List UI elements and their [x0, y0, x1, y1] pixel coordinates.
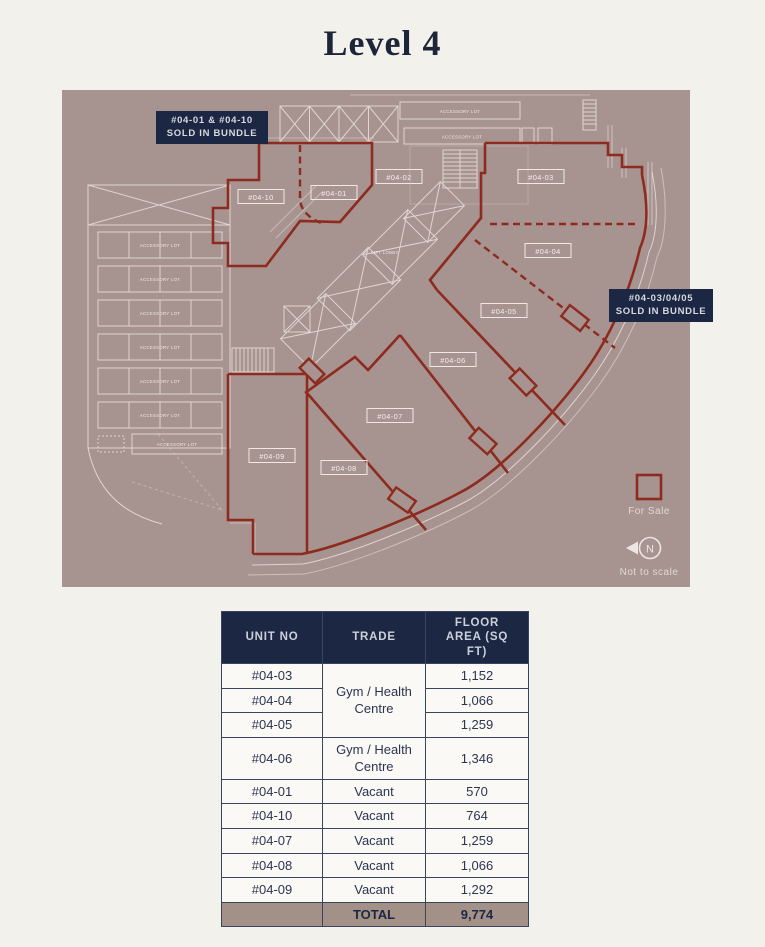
- cell-trade: Vacant: [323, 853, 426, 878]
- svg-text:#04-07: #04-07: [377, 412, 402, 421]
- not-to-scale-label: Not to scale: [620, 567, 679, 578]
- svg-text:LIFT LOBBY: LIFT LOBBY: [371, 250, 398, 255]
- unit-table-wrap: UNIT NO TRADE FLOOR AREA (SQ FT) #04-03 …: [221, 611, 528, 927]
- floor-plan-drawing: ACCESSORY LOT ACCESSORY LOT ACCESSORY LO…: [62, 90, 690, 587]
- table-total-row: TOTAL 9,774: [222, 902, 529, 927]
- cell-unit: #04-09: [222, 878, 323, 903]
- table-row: #04-09 Vacant 1,292: [222, 878, 529, 903]
- svg-text:ACCESSORY LOT: ACCESSORY LOT: [140, 345, 180, 350]
- table-row: #04-08 Vacant 1,066: [222, 853, 529, 878]
- cell-area: 570: [426, 779, 529, 804]
- cell-area: 1,152: [426, 664, 529, 689]
- header-floor-area: FLOOR AREA (SQ FT): [426, 612, 529, 664]
- callout-bundle-01-10: #04-01 & #04-10 SOLD IN BUNDLE: [156, 111, 268, 144]
- svg-text:ACCESSORY LOT: ACCESSORY LOT: [140, 379, 180, 384]
- svg-text:ACCESSORY LOT: ACCESSORY LOT: [140, 311, 180, 316]
- cell-unit: #04-08: [222, 853, 323, 878]
- cell-area: 1,066: [426, 853, 529, 878]
- svg-text:#04-04: #04-04: [535, 247, 560, 256]
- table-header-row: UNIT NO TRADE FLOOR AREA (SQ FT): [222, 612, 529, 664]
- cell-total-label: TOTAL: [323, 902, 426, 927]
- for-sale-label: For Sale: [628, 506, 670, 517]
- svg-text:#04-10: #04-10: [248, 193, 273, 202]
- callout-line: SOLD IN BUNDLE: [611, 305, 711, 318]
- cell-area: 1,259: [426, 828, 529, 853]
- callout-bundle-03-04-05: #04-03/04/05 SOLD IN BUNDLE: [609, 289, 713, 322]
- cell-area: 1,292: [426, 878, 529, 903]
- plan-background: [62, 90, 690, 587]
- table-row: #04-10 Vacant 764: [222, 804, 529, 829]
- cell-area: 1,066: [426, 688, 529, 713]
- svg-text:#04-03: #04-03: [528, 173, 553, 182]
- svg-text:#04-01: #04-01: [321, 189, 346, 198]
- cell-empty: [222, 902, 323, 927]
- svg-text:#04-02: #04-02: [386, 173, 411, 182]
- cell-area: 1,346: [426, 737, 529, 779]
- header-trade: TRADE: [323, 612, 426, 664]
- cell-unit: #04-03: [222, 664, 323, 689]
- svg-text:#04-08: #04-08: [331, 464, 356, 473]
- cell-area: 764: [426, 804, 529, 829]
- cell-trade: Vacant: [323, 779, 426, 804]
- cell-unit: #04-10: [222, 804, 323, 829]
- cell-trade: Vacant: [323, 828, 426, 853]
- cell-unit: #04-06: [222, 737, 323, 779]
- svg-text:ACCESSORY LOT: ACCESSORY LOT: [140, 277, 180, 282]
- cell-unit: #04-01: [222, 779, 323, 804]
- cell-unit: #04-04: [222, 688, 323, 713]
- cell-trade: Vacant: [323, 804, 426, 829]
- cell-area: 1,259: [426, 713, 529, 738]
- cell-unit: #04-07: [222, 828, 323, 853]
- svg-text:ACCESSORY LOT: ACCESSORY LOT: [140, 243, 180, 248]
- cell-total-value: 9,774: [426, 902, 529, 927]
- cell-trade: Gym / Health Centre: [323, 737, 426, 779]
- svg-text:N: N: [646, 544, 654, 556]
- callout-line: #04-01 & #04-10: [158, 114, 266, 127]
- svg-text:#04-06: #04-06: [440, 356, 465, 365]
- svg-text:#04-09: #04-09: [259, 452, 284, 461]
- header-unit-no: UNIT NO: [222, 612, 323, 664]
- svg-text:ACCESSORY LOT: ACCESSORY LOT: [442, 135, 482, 140]
- unit-table: UNIT NO TRADE FLOOR AREA (SQ FT) #04-03 …: [221, 611, 529, 927]
- page-title: Level 4: [0, 0, 765, 64]
- svg-text:ACCESSORY LOT: ACCESSORY LOT: [140, 413, 180, 418]
- table-row: #04-06 Gym / Health Centre 1,346: [222, 737, 529, 779]
- svg-text:ACCESSORY LOT: ACCESSORY LOT: [157, 442, 197, 447]
- table-row: #04-03 Gym / Health Centre 1,152: [222, 664, 529, 689]
- table-row: #04-07 Vacant 1,259: [222, 828, 529, 853]
- callout-line: SOLD IN BUNDLE: [158, 127, 266, 140]
- cell-trade: Gym / Health Centre: [323, 664, 426, 738]
- svg-text:#04-05: #04-05: [491, 307, 516, 316]
- callout-line: #04-03/04/05: [611, 292, 711, 305]
- cell-unit: #04-05: [222, 713, 323, 738]
- cell-trade: Vacant: [323, 878, 426, 903]
- floor-plan: ACCESSORY LOT ACCESSORY LOT ACCESSORY LO…: [62, 90, 690, 587]
- svg-text:ACCESSORY LOT: ACCESSORY LOT: [440, 109, 480, 114]
- table-row: #04-01 Vacant 570: [222, 779, 529, 804]
